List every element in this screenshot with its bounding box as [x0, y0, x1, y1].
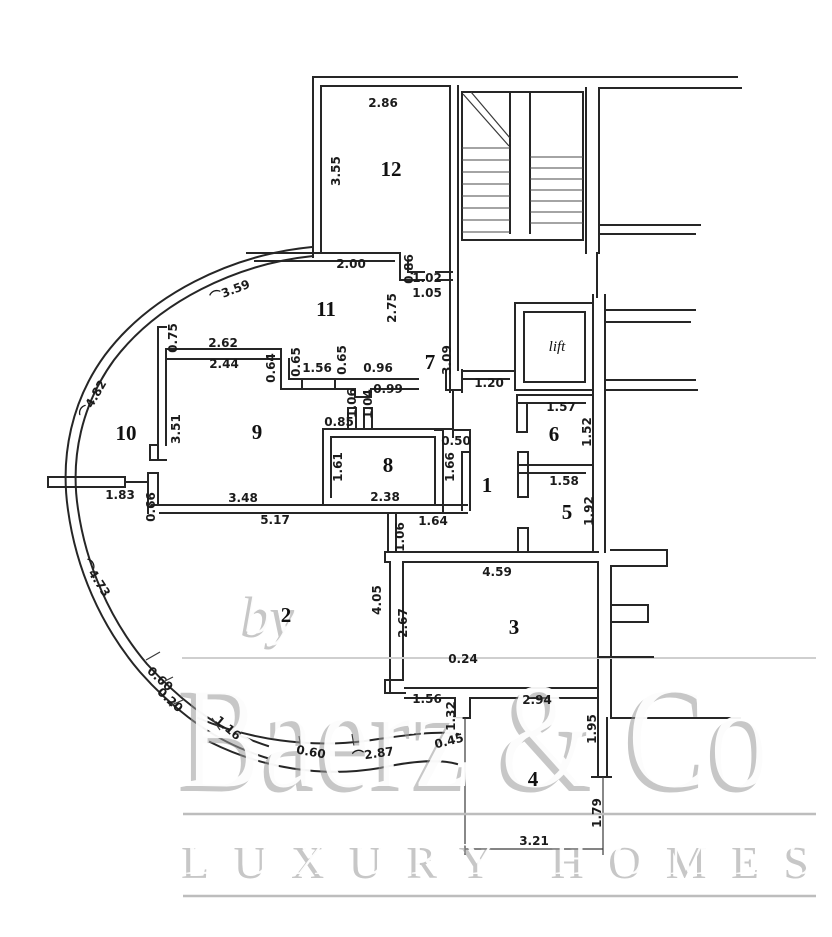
dimension-label: 0.50 — [441, 434, 471, 448]
dimension-label: 3.51 — [169, 414, 183, 444]
dimension-label: 1.57 — [546, 400, 576, 414]
stair-treads — [462, 148, 583, 232]
dimension-label: 1.58 — [549, 474, 579, 488]
dimension-label: 2.44 — [209, 357, 239, 371]
dimension-label: 1.32 — [444, 701, 458, 731]
room-label-4: 4 — [528, 767, 539, 791]
watermark-tagline-shadow: LUXURY HOMES — [181, 837, 809, 888]
room-label-12: 12 — [381, 157, 402, 181]
dimension-label: 1.05 — [412, 286, 442, 300]
dimension-label: 2.38 — [370, 490, 400, 504]
dimension-label: 3.21 — [519, 834, 549, 848]
room-label-10: 10 — [116, 421, 137, 445]
dimension-label: 1.66 — [443, 452, 457, 482]
dimension-label: 2.75 — [385, 293, 399, 323]
room-label-9: 9 — [252, 420, 263, 444]
dimension-label: 0.99 — [373, 382, 403, 396]
dimension-label: 0.24 — [448, 652, 478, 666]
dimension-label: ⌒3.59 — [207, 276, 252, 305]
dimension-label: 1.20 — [474, 376, 504, 390]
room-label-6: 6 — [549, 422, 560, 446]
dimension-label: 1.52 — [580, 417, 594, 447]
dimension-label: 1.02 — [412, 271, 442, 285]
dimension-label: 1.06 — [393, 522, 407, 552]
dimension-label: 4.59 — [482, 565, 512, 579]
room-label-lift: lift — [549, 339, 567, 355]
dimension-label: ⌒4.73 — [78, 555, 114, 599]
dimension-label: 1.61 — [331, 452, 345, 482]
dimension-label: 0.65 — [289, 347, 303, 377]
room-label-11: 11 — [316, 297, 336, 321]
wall-right-side — [586, 88, 700, 552]
room-label-3: 3 — [509, 615, 520, 639]
dimension-label: 0.66 — [144, 492, 158, 522]
room-label-7: 7 — [425, 350, 436, 374]
dimension-label: 1.56 — [412, 692, 442, 706]
dimension-label: 1.95 — [585, 714, 599, 744]
dimension-label: 2.86 — [368, 96, 398, 110]
dimension-label: 0.96 — [363, 361, 393, 375]
dimension-label: 4.05 — [370, 585, 384, 615]
dimension-label: 3.48 — [228, 491, 258, 505]
dimension-label: 1.04 — [361, 389, 375, 419]
dimension-label: 0.65 — [335, 345, 349, 375]
staircase — [462, 92, 583, 240]
dimension-label: 2.62 — [208, 336, 238, 350]
floor-plan-page: by by Baerz & Co Baerz & Co LUXURY HOMES… — [0, 0, 832, 937]
dimension-label: 2.67 — [396, 608, 410, 638]
room-label-2: 2 — [281, 603, 292, 627]
dimension-label: 1.64 — [418, 514, 448, 528]
dimension-label: 1.79 — [590, 798, 604, 828]
stair-direction-lines — [463, 92, 510, 146]
watermark-tagline: LUXURY HOMES — [185, 833, 813, 884]
dimension-label: 1.83 — [105, 488, 135, 502]
dimension-label: 5.17 — [260, 513, 290, 527]
dimension-label: 1.92 — [582, 496, 596, 526]
room-label-5: 5 — [562, 500, 573, 524]
watermark-brand: Baerz & Co — [182, 653, 772, 819]
floor-plan-svg: by by Baerz & Co Baerz & Co LUXURY HOMES… — [0, 0, 832, 937]
dimension-label: 0.75 — [166, 323, 180, 353]
dimension-label: 2.00 — [336, 257, 366, 271]
room-label-1: 1 — [482, 473, 493, 497]
room-label-8: 8 — [383, 453, 394, 477]
dimension-label: 0.64 — [264, 353, 278, 383]
dimension-label: 1.56 — [302, 361, 332, 375]
dimension-label: 3.55 — [329, 156, 343, 186]
dimension-label: 2.94 — [522, 693, 552, 707]
dimension-label: 3.09 — [440, 345, 454, 375]
dimension-label: 1.06 — [345, 388, 359, 418]
